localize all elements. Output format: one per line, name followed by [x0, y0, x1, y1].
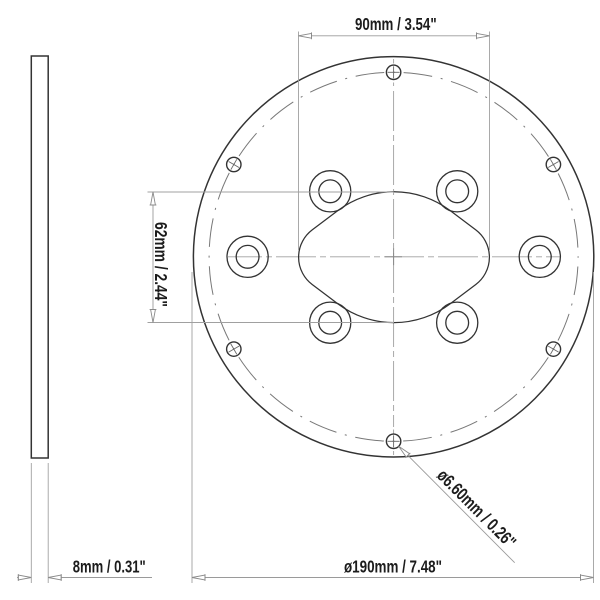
- svg-text:8mm / 0.31": 8mm / 0.31": [73, 556, 146, 576]
- svg-text:ø190mm / 7.48": ø190mm / 7.48": [344, 556, 442, 576]
- svg-text:62mm / 2.44": 62mm / 2.44": [151, 222, 171, 307]
- svg-text:ø6.60mm / 0.26": ø6.60mm / 0.26": [433, 465, 520, 552]
- svg-text:90mm / 3.54": 90mm / 3.54": [355, 14, 437, 34]
